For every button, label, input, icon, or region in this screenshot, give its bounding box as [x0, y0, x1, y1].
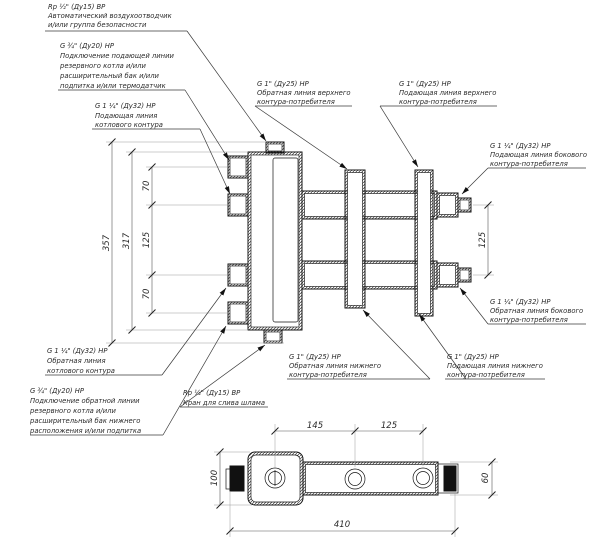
front-view	[228, 142, 471, 343]
svg-text:Подключение подающей линии: Подключение подающей линии	[60, 52, 175, 60]
svg-text:контура-потребителя: контура-потребителя	[447, 371, 525, 379]
boiler-port-4	[228, 302, 248, 324]
consumer-tube-1	[345, 170, 365, 308]
svg-text:Подающая линия нижнего: Подающая линия нижнего	[447, 362, 543, 370]
dim-port-gap-top: 70	[142, 181, 152, 192]
consumer-tube-2	[415, 170, 433, 316]
svg-text:Rp ½" (Ду15) ВР: Rp ½" (Ду15) ВР	[183, 389, 241, 397]
dim-manifold-width: 60	[481, 473, 491, 484]
top-view: 145 125 410 100 60	[210, 421, 498, 537]
dim-overall-height: 357	[102, 234, 112, 251]
dim-overall-length: 410	[334, 520, 350, 530]
svg-text:Обратная линия верхнего: Обратная линия верхнего	[257, 89, 351, 97]
svg-text:G 1 ¼" (Ду32) НР: G 1 ¼" (Ду32) НР	[490, 298, 551, 306]
svg-text:G ¾" (Ду20) НР: G ¾" (Ду20) НР	[60, 42, 115, 50]
dim-port-gap-bottom: 70	[142, 289, 152, 300]
svg-text:и/или группа безопасности: и/или группа безопасности	[48, 21, 147, 29]
svg-text:G 1 ¼" (Ду32) НР: G 1 ¼" (Ду32) НР	[47, 347, 108, 355]
svg-text:расширительный бак и/или: расширительный бак и/или	[59, 72, 160, 80]
label-reserve-return: G ¾" (Ду20) НР Подключение обратной лини…	[29, 387, 141, 435]
label-lower-return: G 1" (Ду25) НР Обратная линия нижнего ко…	[289, 353, 381, 379]
svg-text:подпитка и/или термодатчик: подпитка и/или термодатчик	[60, 82, 167, 90]
dim-side-ports-gap: 125	[478, 232, 488, 248]
svg-text:Обратная линия: Обратная линия	[47, 357, 106, 365]
svg-text:расширительный бак нижнего: расширительный бак нижнего	[29, 417, 140, 425]
svg-text:Подающая линия: Подающая линия	[95, 112, 157, 120]
svg-text:G 1" (Ду25) НР: G 1" (Ду25) НР	[257, 80, 310, 88]
separator-body	[248, 152, 302, 330]
svg-text:резервного котла и/или: резервного котла и/или	[29, 407, 116, 415]
label-side-supply: G 1 ¼" (Ду32) НР Подающая линия бокового…	[490, 142, 587, 168]
side-fitting-lower	[437, 263, 471, 287]
top-view-right-port	[438, 464, 458, 493]
svg-text:Кран для слива шлама: Кран для слива шлама	[183, 399, 265, 407]
top-view-separator-body	[248, 452, 303, 505]
air-vent-stub	[266, 142, 284, 153]
boiler-port-2	[228, 194, 248, 216]
label-boiler-supply: G 1 ¼" (Ду32) НР Подающая линия котловог…	[95, 102, 163, 129]
svg-text:расположения и/или подпитка: расположения и/или подпитка	[29, 427, 141, 435]
top-view-manifold-beam	[303, 462, 438, 495]
side-fitting-upper	[437, 193, 471, 217]
boiler-port-1	[228, 156, 248, 178]
svg-text:контура-потребителя: контура-потребителя	[490, 316, 568, 324]
label-lower-supply: G 1" (Ду25) НР Подающая линия нижнего ко…	[447, 353, 543, 379]
svg-text:G 1" (Ду25) НР: G 1" (Ду25) НР	[289, 353, 342, 361]
svg-text:Rp ½" (Ду15) ВР: Rp ½" (Ду15) ВР	[48, 3, 106, 11]
svg-text:Обратная линия бокового: Обратная линия бокового	[490, 307, 583, 315]
dim-top-view-gap-1: 145	[307, 421, 323, 431]
label-upper-return: G 1" (Ду25) НР Обратная линия верхнего к…	[257, 80, 351, 106]
label-upper-supply: G 1" (Ду25) НР Подающая линия верхнего к…	[399, 80, 496, 106]
label-reserve-supply: G ¾" (Ду20) НР Подключение подающей лини…	[59, 42, 175, 90]
label-boiler-return: G 1 ¼" (Ду32) НР Обратная линия котловог…	[47, 347, 115, 375]
top-view-left-port	[226, 466, 244, 491]
label-drain: Rp ½" (Ду15) ВР Кран для слива шлама	[183, 389, 265, 407]
svg-text:Подающая линия верхнего: Подающая линия верхнего	[399, 89, 496, 97]
dim-port-gap-mid: 125	[142, 232, 152, 248]
svg-text:G 1 ¼" (Ду32) НР: G 1 ¼" (Ду32) НР	[95, 102, 156, 110]
label-air-vent: Rp ½" (Ду15) ВР Автоматический воздухоот…	[47, 3, 173, 29]
svg-text:Подающая линия бокового: Подающая линия бокового	[490, 151, 587, 159]
svg-text:котлового контура: котлового контура	[95, 121, 163, 129]
svg-text:Автоматический воздухоотводчик: Автоматический воздухоотводчик	[47, 12, 173, 20]
svg-text:G 1 ¼" (Ду32) НР: G 1 ¼" (Ду32) НР	[490, 142, 551, 150]
svg-text:Обратная линия нижнего: Обратная линия нижнего	[289, 362, 381, 370]
dim-body-width: 100	[210, 470, 220, 486]
drain-stub	[264, 330, 282, 343]
svg-text:котлового контура: котлового контура	[47, 367, 115, 375]
svg-text:Подключение обратной линии: Подключение обратной линии	[30, 397, 140, 405]
svg-text:контура-потребителя: контура-потребителя	[289, 371, 367, 379]
svg-text:контура-потребителя: контура-потребителя	[257, 98, 335, 106]
svg-text:G 1" (Ду25) НР: G 1" (Ду25) НР	[399, 80, 452, 88]
svg-text:резервного котла и/или: резервного котла и/или	[59, 62, 146, 70]
svg-text:G 1" (Ду25) НР: G 1" (Ду25) НР	[447, 353, 500, 361]
svg-text:G ¾" (Ду20) НР: G ¾" (Ду20) НР	[30, 387, 85, 395]
dim-top-view-gap-2: 125	[381, 421, 397, 431]
svg-text:контура-потребителя: контура-потребителя	[490, 160, 568, 168]
boiler-port-3	[228, 264, 248, 286]
dim-body-height: 317	[122, 232, 132, 249]
hydraulic-separator-drawing: 357 317 70 125 70 125 Rp ½" (Ду15) ВР Ав…	[0, 0, 600, 550]
svg-text:контура-потребителя: контура-потребителя	[399, 98, 477, 106]
drawing-canvas: 357 317 70 125 70 125 Rp ½" (Ду15) ВР Ав…	[0, 0, 600, 550]
label-side-return: G 1 ¼" (Ду32) НР Обратная линия бокового…	[490, 298, 583, 324]
